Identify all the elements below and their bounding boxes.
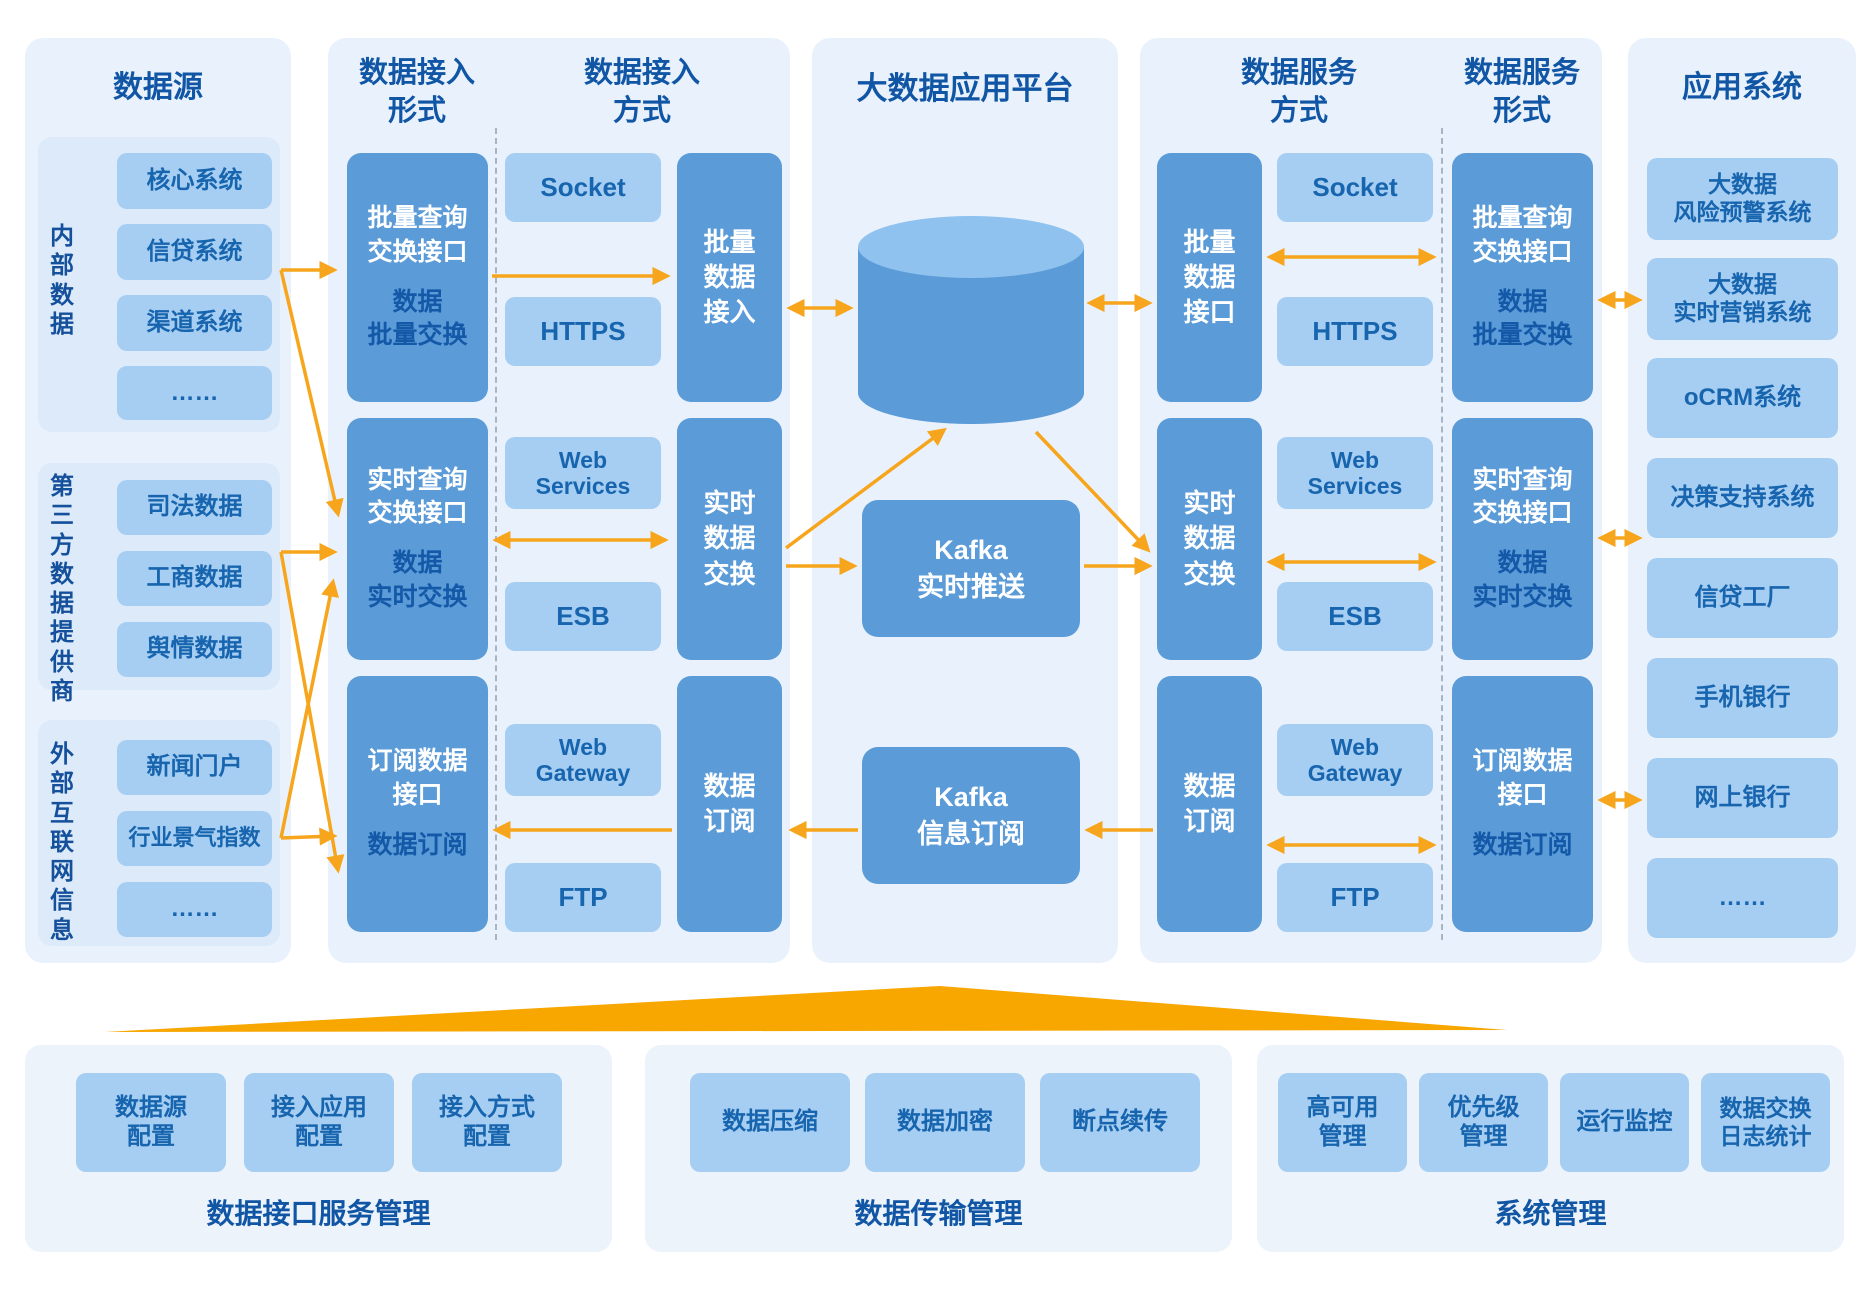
service-batch-navy-text: 数据 批量交换	[1472, 286, 1572, 354]
architecture-diagram: 数据源 内部数据 核心系统 信贷系统 渠道系统 …… 第三方数据提供商 司法数据…	[0, 0, 1876, 1303]
service-form-title: 数据服务 形式	[1437, 55, 1607, 130]
subscribe-data-interface-box: 订阅数据 接口 数据订阅	[347, 676, 488, 932]
group-thirdparty-label: 第三方数据提供商	[46, 472, 78, 706]
service-protocol-webgateway: Web Gateway	[1277, 724, 1433, 796]
mgmt-access-app-config: 接入应用 配置	[244, 1073, 394, 1172]
hadoop-label: Hadoop 大数据平台	[858, 288, 1084, 398]
batch-query-navy-text: 数据 批量交换	[367, 286, 467, 354]
service-realtime-navy-text: 数据 实时交换	[1472, 547, 1572, 615]
ingest-mode-title: 数据接入 方式	[557, 55, 727, 130]
subscribe-navy-text: 数据订阅	[367, 829, 467, 863]
service-protocol-socket: Socket	[1277, 153, 1433, 222]
app-ocrm-system: oCRM系统	[1647, 358, 1838, 438]
ingest-protocol-ftp: FTP	[505, 863, 661, 932]
ingest-protocol-socket: Socket	[505, 153, 661, 222]
realtime-query-exchange-interface-box: 实时查询 交换接口 数据 实时交换	[347, 418, 488, 660]
service-protocol-ftp: FTP	[1277, 863, 1433, 932]
service-mode-title: 数据服务 方式	[1214, 55, 1384, 130]
service-divider	[1441, 128, 1443, 940]
service-subscribe-white-text: 订阅数据 接口	[1472, 745, 1572, 813]
source-item-business-data: 工商数据	[117, 551, 272, 606]
mgmt-runtime-monitoring: 运行监控	[1560, 1073, 1689, 1172]
platform-title: 大数据应用平台	[812, 70, 1118, 107]
service-protocol-esb: ESB	[1277, 582, 1433, 651]
kafka-sub-label: Kafka 信息订阅	[917, 779, 1025, 852]
app-bigdata-realtime-marketing: 大数据 实时营销系统	[1647, 258, 1838, 340]
batch-data-ingest-box: 批量 数据 接入	[677, 153, 782, 402]
source-item-ellipsis-2: ……	[117, 882, 272, 937]
data-subscribe-box-left: 数据 订阅	[677, 676, 782, 932]
ingest-protocol-esb: ESB	[505, 582, 661, 651]
mgmt-data-encryption: 数据加密	[865, 1073, 1025, 1172]
mgmt-datasource-config: 数据源 配置	[76, 1073, 226, 1172]
mgmt-access-mode-config: 接入方式 配置	[412, 1073, 562, 1172]
realtime-data-exchange-box-left: 实时 数据 交换	[677, 418, 782, 660]
mgmt-resume-transfer: 断点续传	[1040, 1073, 1200, 1172]
ingest-protocol-webservices: Web Services	[505, 437, 661, 509]
funnel-wedge	[105, 986, 1507, 1032]
service-subscribe-navy-text: 数据订阅	[1472, 829, 1572, 863]
app-credit-factory: 信贷工厂	[1647, 558, 1838, 638]
apps-title: 应用系统	[1628, 70, 1856, 106]
kafka-message-subscribe-box: Kafka 信息订阅	[862, 747, 1080, 884]
source-item-credit-system: 信贷系统	[117, 224, 272, 280]
source-item-channel-system: 渠道系统	[117, 295, 272, 351]
mgmt-high-availability: 高可用 管理	[1278, 1073, 1407, 1172]
mgmt-data-compression: 数据压缩	[690, 1073, 850, 1172]
app-decision-support: 决策支持系统	[1647, 458, 1838, 538]
ingest-divider	[495, 128, 497, 940]
service-subscribe-interface-box: 订阅数据 接口 数据订阅	[1452, 676, 1593, 932]
mgmt-exchange-log-stats: 数据交换 日志统计	[1701, 1073, 1830, 1172]
service-realtime-query-exchange-box: 实时查询 交换接口 数据 实时交换	[1452, 418, 1593, 660]
interface-service-mgmt-caption: 数据接口服务管理	[25, 1192, 612, 1232]
realtime-query-white-text: 实时查询 交换接口	[367, 464, 467, 532]
service-batch-query-exchange-box: 批量查询 交换接口 数据 批量交换	[1452, 153, 1593, 402]
ingest-protocol-webgateway: Web Gateway	[505, 724, 661, 796]
batch-query-white-text: 批量查询 交换接口	[367, 202, 467, 270]
sources-title: 数据源	[25, 70, 291, 106]
batch-query-exchange-interface-box: 批量查询 交换接口 数据 批量交换	[347, 153, 488, 402]
app-mobile-banking: 手机银行	[1647, 658, 1838, 738]
app-online-banking: 网上银行	[1647, 758, 1838, 838]
realtime-query-navy-text: 数据 实时交换	[367, 547, 467, 615]
kafka-push-label: Kafka 实时推送	[917, 532, 1025, 605]
service-realtime-white-text: 实时查询 交换接口	[1472, 464, 1572, 532]
source-item-news-portal: 新闻门户	[117, 740, 272, 795]
realtime-data-exchange-box-right: 实时 数据 交换	[1157, 418, 1262, 660]
source-item-opinion-data: 舆情数据	[117, 622, 272, 677]
service-protocol-webservices: Web Services	[1277, 437, 1433, 509]
service-protocol-https: HTTPS	[1277, 297, 1433, 366]
service-batch-white-text: 批量查询 交换接口	[1472, 202, 1572, 270]
system-mgmt-caption: 系统管理	[1257, 1192, 1844, 1232]
transmission-mgmt-caption: 数据传输管理	[645, 1192, 1232, 1232]
source-item-core-system: 核心系统	[117, 153, 272, 209]
group-internal-data-label: 内部数据	[46, 222, 78, 339]
batch-data-interface-box: 批量 数据 接口	[1157, 153, 1262, 402]
mgmt-priority: 优先级 管理	[1419, 1073, 1548, 1172]
app-ellipsis: ……	[1647, 858, 1838, 938]
app-bigdata-risk-warning: 大数据 风险预警系统	[1647, 158, 1838, 240]
data-subscribe-box-right: 数据 订阅	[1157, 676, 1262, 932]
source-item-ellipsis: ……	[117, 366, 272, 420]
source-item-judicial-data: 司法数据	[117, 480, 272, 535]
group-external-label: 外部互联网信息	[46, 740, 78, 945]
source-item-industry-index: 行业景气指数	[117, 811, 272, 866]
ingest-protocol-https: HTTPS	[505, 297, 661, 366]
subscribe-white-text: 订阅数据 接口	[367, 745, 467, 813]
kafka-realtime-push-box: Kafka 实时推送	[862, 500, 1080, 637]
ingest-form-title: 数据接入 形式	[332, 55, 502, 130]
